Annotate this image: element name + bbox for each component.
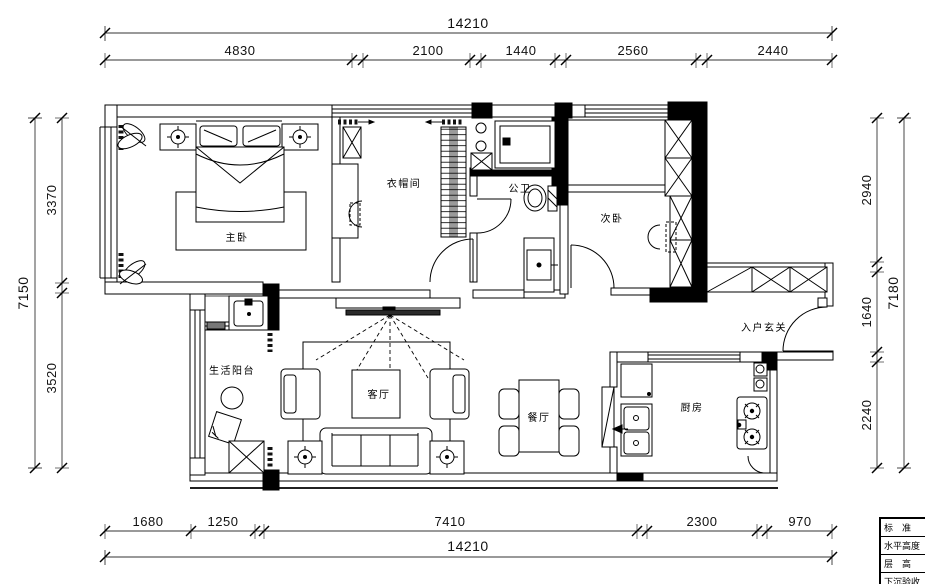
utility-balcony: [205, 296, 268, 473]
dim-right-seg-1: 2940: [859, 175, 874, 206]
legend-row: 水平高度: [880, 537, 925, 555]
chair: [499, 426, 519, 456]
legend-cell: 水平高度: [880, 537, 925, 555]
round-table: [221, 387, 243, 409]
room-label-living: 客厅: [368, 388, 391, 401]
dimension-left: [28, 113, 69, 473]
burner-icon: [744, 403, 760, 419]
master-bedroom: [116, 120, 318, 286]
shoe-cabinet: [707, 267, 827, 292]
fixture-icon: [476, 141, 486, 151]
legend-cell: 下沉验收: [880, 573, 925, 584]
laundry-sink: [229, 296, 268, 330]
secondary-bedroom-door: [571, 245, 614, 288]
armchair: [430, 369, 469, 419]
legend-row: 层 高: [880, 555, 925, 573]
secondary-bedroom: [568, 120, 692, 287]
dim-right-overall: 7180: [885, 276, 901, 309]
dim-bottom-seg-5: 970: [788, 514, 811, 529]
dimension-top: [100, 26, 837, 68]
dim-top-seg-1: 4830: [225, 43, 256, 58]
floor-plan-drawing: 14210 4830 2100 1440 2560 2440 1680 1250…: [0, 0, 925, 584]
dim-top-seg-5: 2440: [758, 43, 789, 58]
dim-top-seg-4: 2560: [618, 43, 649, 58]
kitchen-sliding-door: [602, 387, 614, 447]
chair-icon: [648, 225, 660, 249]
dresser: [332, 164, 358, 238]
room-label-bathroom: 公卫: [509, 184, 532, 195]
room-label-balcony: 生活阳台: [209, 364, 255, 377]
armchair: [281, 369, 320, 419]
cloakroom-door: [430, 239, 473, 282]
hanger-rack: [441, 127, 466, 237]
wall-fixtures: [754, 363, 767, 391]
dim-bottom-overall: 14210: [447, 538, 488, 554]
living-room: [281, 298, 469, 474]
sofa: [320, 428, 432, 474]
wardrobe: [665, 120, 692, 287]
double-bed: [196, 121, 284, 222]
legend-cell: 层 高: [880, 555, 925, 573]
entry-foyer: [707, 267, 827, 292]
burner-icon: [744, 429, 760, 445]
vanity-sink: [524, 238, 558, 292]
fridge: [621, 364, 652, 397]
cabinet: [229, 441, 264, 473]
fixture-icon: [476, 123, 486, 133]
floor-plan-canvas: 14210 4830 2100 1440 2560 2440 1680 1250…: [0, 0, 925, 584]
dim-bottom-seg-1: 1680: [133, 514, 164, 529]
dim-bottom-seg-3: 7410: [435, 514, 466, 529]
room-label-secondary: 次卧: [601, 212, 624, 225]
dim-right-seg-3: 2240: [859, 400, 874, 431]
chair: [499, 389, 519, 419]
room-label-master: 主卧: [226, 231, 249, 244]
legend-table: 标 准 水平高度 层 高 下沉验收: [879, 517, 925, 584]
dim-top-overall: 14210: [447, 15, 488, 31]
chair: [559, 426, 579, 456]
stove: [737, 397, 767, 449]
dim-bottom-seg-2: 1250: [208, 514, 239, 529]
bathroom-door: [477, 199, 511, 233]
room-label-cloakroom: 衣帽间: [387, 177, 422, 190]
dim-left-seg-1: 3370: [44, 185, 59, 216]
kitchen-sink: [613, 404, 652, 456]
legend-row: 标 准: [880, 518, 925, 537]
room-label-dining: 餐厅: [528, 411, 551, 424]
kitchen-corner-arc: [748, 456, 765, 473]
chair: [559, 389, 579, 419]
legend-row: 下沉验收: [880, 573, 925, 584]
bathroom: [471, 121, 558, 292]
room-label-entry: 入户玄关: [741, 321, 787, 334]
dim-left-overall: 7150: [15, 276, 31, 309]
shelf: [205, 296, 229, 330]
bed: [568, 120, 665, 192]
room-label-kitchen: 厨房: [681, 401, 704, 414]
dim-bottom-seg-4: 2300: [687, 514, 718, 529]
legend-cell: 标 准: [880, 518, 925, 537]
shower: [495, 121, 555, 168]
dim-top-seg-3: 1440: [506, 43, 537, 58]
dim-right-seg-2: 1640: [859, 297, 874, 328]
dim-top-seg-2: 2100: [413, 43, 444, 58]
entry-door: [783, 298, 827, 351]
tv-unit: [336, 298, 460, 315]
dim-left-seg-2: 3520: [44, 363, 59, 394]
stool: [209, 412, 242, 445]
